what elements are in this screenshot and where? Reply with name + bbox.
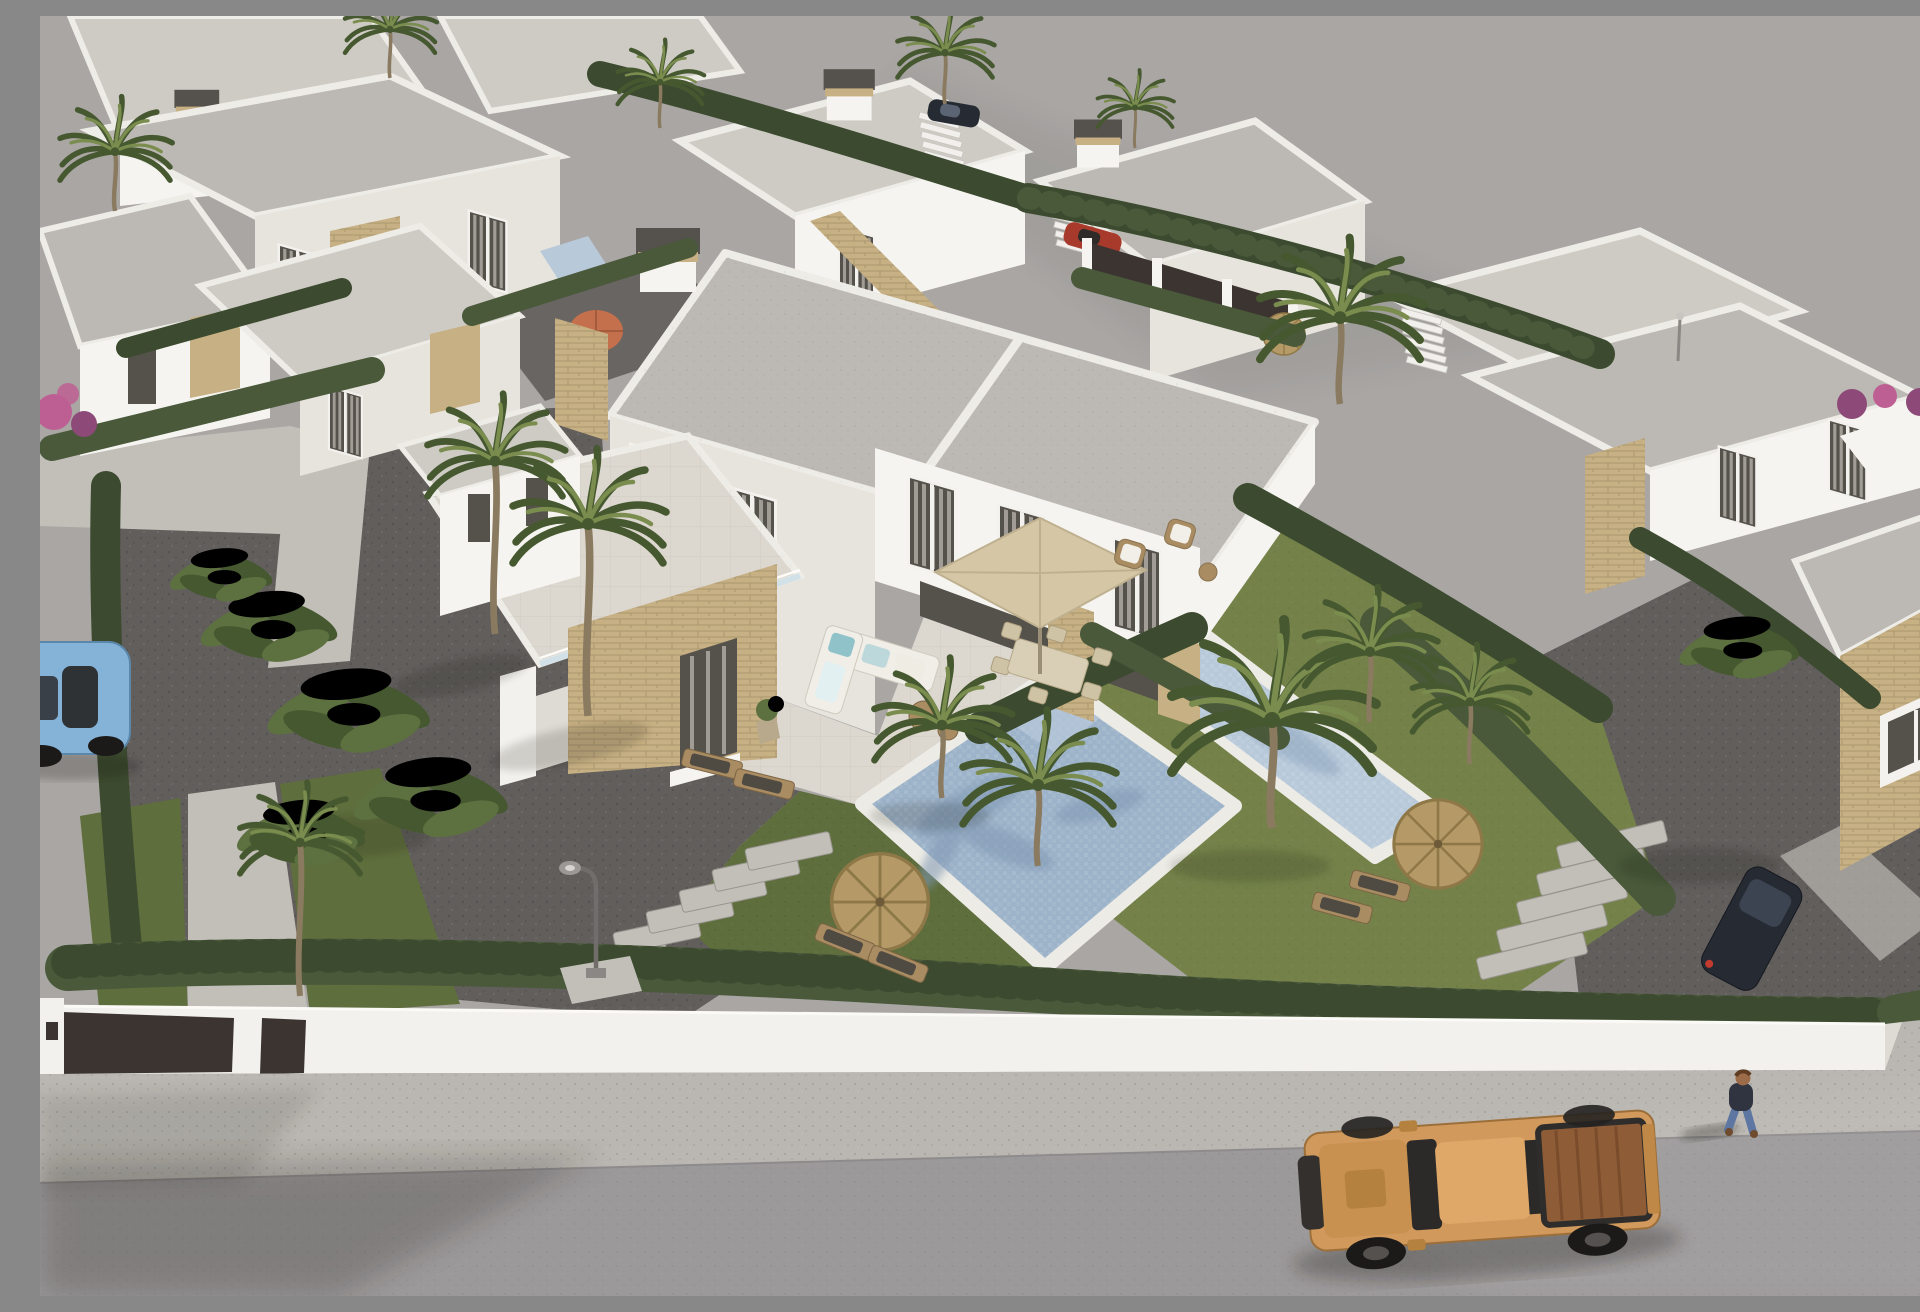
scene-canvas: Aerial 3D architectural rendering of a m… [40,16,1920,1296]
cab-roof [1434,1136,1531,1224]
entrance-gate [60,1012,234,1074]
windshield [62,666,98,728]
straw-parasol-right [1394,800,1482,888]
garden-lamp-small [1678,318,1680,361]
car-seats [40,676,58,720]
entrance-gate [260,1018,306,1074]
chimney [824,69,875,120]
mirror [1399,1120,1418,1132]
architectural-render: Aerial 3D architectural rendering of a m… [40,16,1920,1296]
blue-convertible [40,642,140,780]
hood-scoop [1344,1168,1387,1209]
street-hedge-end [1894,1000,1920,1012]
mirror [1407,1239,1426,1251]
side-table [1199,563,1217,581]
intercom-panel [46,1022,58,1040]
truck-bed [1538,1120,1651,1225]
torso [1729,1083,1753,1111]
